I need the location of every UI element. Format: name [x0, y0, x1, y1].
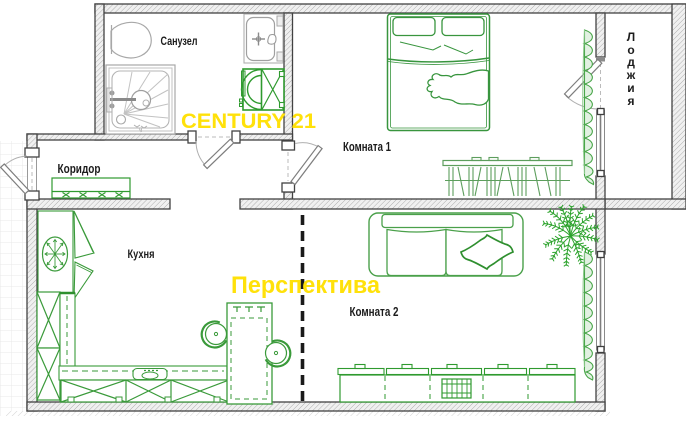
svg-text:ж: ж: [626, 68, 636, 82]
svg-text:Комната 1: Комната 1: [343, 139, 391, 154]
svg-text:CENTURY 21: CENTURY 21: [181, 109, 316, 133]
svg-text:Кухня: Кухня: [128, 247, 155, 261]
svg-text:Комната 2: Комната 2: [350, 304, 399, 319]
svg-text:Коридор: Коридор: [58, 162, 101, 176]
svg-text:я: я: [627, 94, 634, 108]
svg-text:Л: Л: [627, 30, 635, 44]
svg-text:Санузел: Санузел: [161, 34, 198, 48]
svg-text:д: д: [627, 55, 635, 69]
svg-text:и: и: [627, 81, 634, 95]
svg-text:Перспектива: Перспектива: [231, 272, 380, 299]
